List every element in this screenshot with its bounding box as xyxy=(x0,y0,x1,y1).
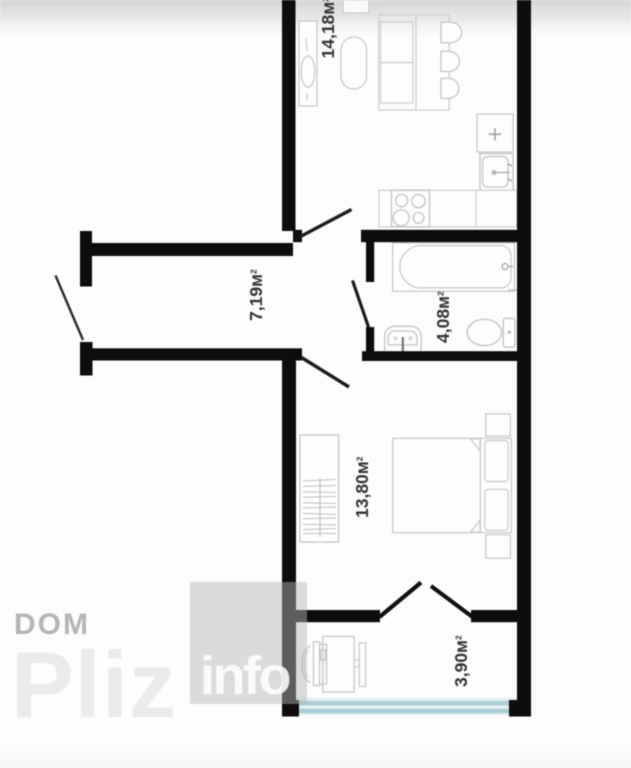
svg-text:13,80м2: 13,80м2 xyxy=(352,456,372,518)
svg-text:7,19м2: 7,19м2 xyxy=(246,269,266,321)
svg-text:14,18м2: 14,18м2 xyxy=(318,0,338,59)
svg-text:3,90м2: 3,90м2 xyxy=(451,635,471,687)
svg-text:4,08м2: 4,08м2 xyxy=(433,291,453,343)
svg-text:Pliz: Pliz xyxy=(11,632,177,737)
svg-text:info: info xyxy=(200,646,289,706)
